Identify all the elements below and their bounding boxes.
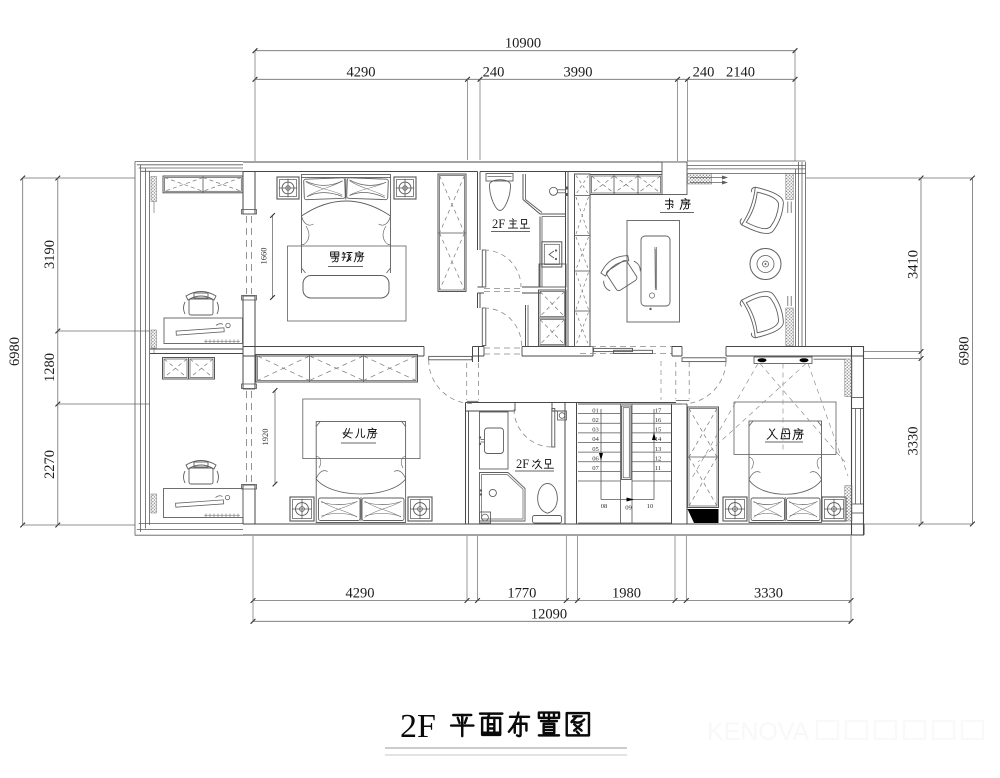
svg-text:04: 04 — [592, 436, 599, 443]
svg-text:4290: 4290 — [347, 65, 376, 81]
svg-text:3410: 3410 — [906, 250, 922, 279]
svg-text:01: 01 — [592, 407, 599, 414]
svg-text:2F: 2F — [492, 217, 505, 231]
svg-text:6980: 6980 — [7, 337, 23, 366]
svg-text:08: 08 — [601, 503, 608, 510]
svg-text:03: 03 — [592, 427, 599, 434]
svg-text:09: 09 — [625, 505, 632, 512]
svg-text:2F: 2F — [516, 457, 529, 471]
svg-text:2270: 2270 — [42, 450, 58, 479]
svg-text:15: 15 — [655, 427, 662, 434]
svg-text:6980: 6980 — [957, 337, 973, 366]
svg-text:11: 11 — [655, 465, 661, 472]
svg-text:1770: 1770 — [507, 586, 536, 602]
svg-text:10: 10 — [647, 503, 654, 510]
svg-text:05: 05 — [592, 446, 599, 453]
svg-text:10900: 10900 — [505, 36, 541, 52]
svg-text:240: 240 — [483, 65, 505, 81]
svg-text:1280: 1280 — [42, 353, 58, 382]
svg-text:16: 16 — [655, 417, 662, 424]
svg-text:07: 07 — [592, 465, 599, 472]
svg-text:12: 12 — [655, 455, 662, 462]
svg-text:1920: 1920 — [260, 429, 270, 446]
svg-text:240: 240 — [693, 65, 715, 81]
svg-text:17: 17 — [655, 407, 662, 414]
svg-text:13: 13 — [655, 446, 662, 453]
svg-text:1660: 1660 — [259, 248, 269, 265]
svg-text:06: 06 — [592, 455, 599, 462]
svg-text:3330: 3330 — [906, 427, 922, 456]
svg-text:3990: 3990 — [564, 65, 593, 81]
svg-text:KENOVA: KENOVA — [707, 718, 810, 746]
svg-text:3190: 3190 — [42, 240, 58, 269]
svg-text:2F: 2F — [400, 708, 436, 745]
svg-text:02: 02 — [592, 417, 599, 424]
svg-text:1980: 1980 — [612, 586, 641, 602]
svg-text:2140: 2140 — [726, 65, 755, 81]
svg-text:3330: 3330 — [754, 586, 783, 602]
svg-text:12090: 12090 — [531, 607, 567, 623]
svg-text:4290: 4290 — [346, 586, 375, 602]
